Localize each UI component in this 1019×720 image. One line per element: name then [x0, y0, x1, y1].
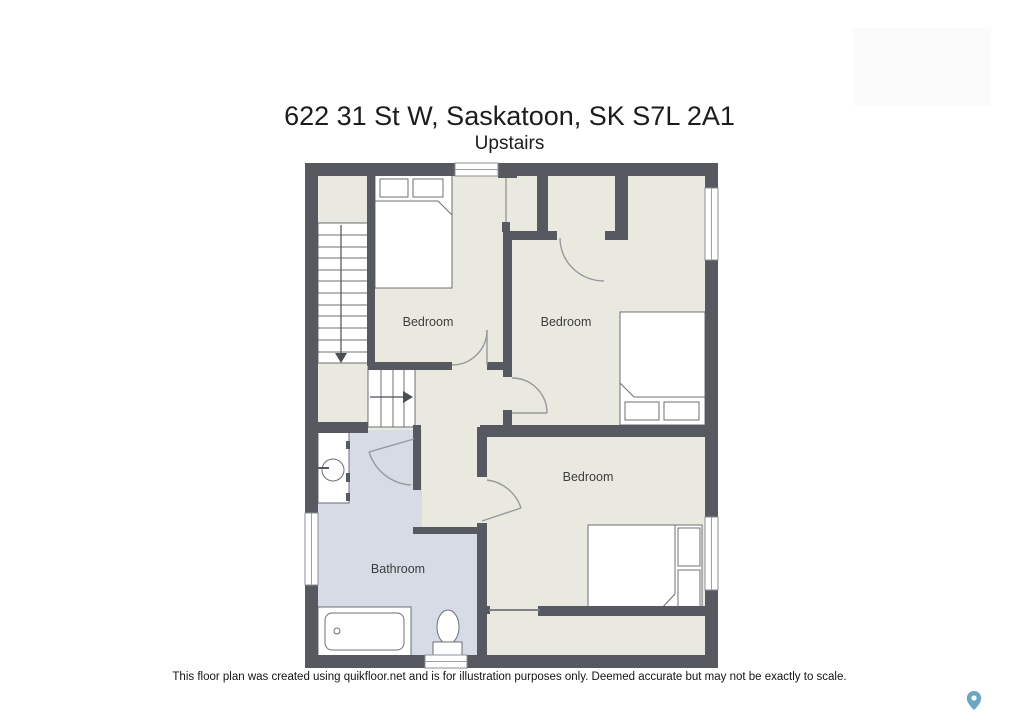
room-label-bedroom-bottom-right: Bedroom: [563, 470, 614, 484]
page-subtitle: Upstairs: [0, 133, 1019, 155]
floor-plan-page: 622 31 St W, Saskatoon, SK S7L 2A1 Upsta…: [0, 0, 1019, 720]
vanity-sink: [318, 430, 350, 503]
room-label-bedroom-top-right: Bedroom: [541, 315, 592, 329]
bed-bottom-right: [588, 525, 702, 610]
window-left-bathroom: [305, 513, 318, 585]
watermark-logo: [853, 28, 991, 106]
page-title: 622 31 St W, Saskatoon, SK S7L 2A1: [0, 101, 1019, 132]
map-pin-icon: [967, 691, 981, 710]
disclaimer-text: This floor plan was created using quikfl…: [0, 671, 1019, 683]
room-label-bathroom: Bathroom: [371, 562, 425, 576]
window-bottom-bathroom: [425, 655, 467, 668]
window-top: [455, 163, 498, 176]
bed-top-right: [620, 312, 705, 425]
window-right-bedroom-bottom: [705, 517, 718, 590]
bathtub: [318, 607, 411, 656]
bed-top-left: [375, 175, 452, 288]
room-label-bedroom-top-left: Bedroom: [403, 315, 454, 329]
window-right-bedroom-top: [705, 188, 718, 260]
